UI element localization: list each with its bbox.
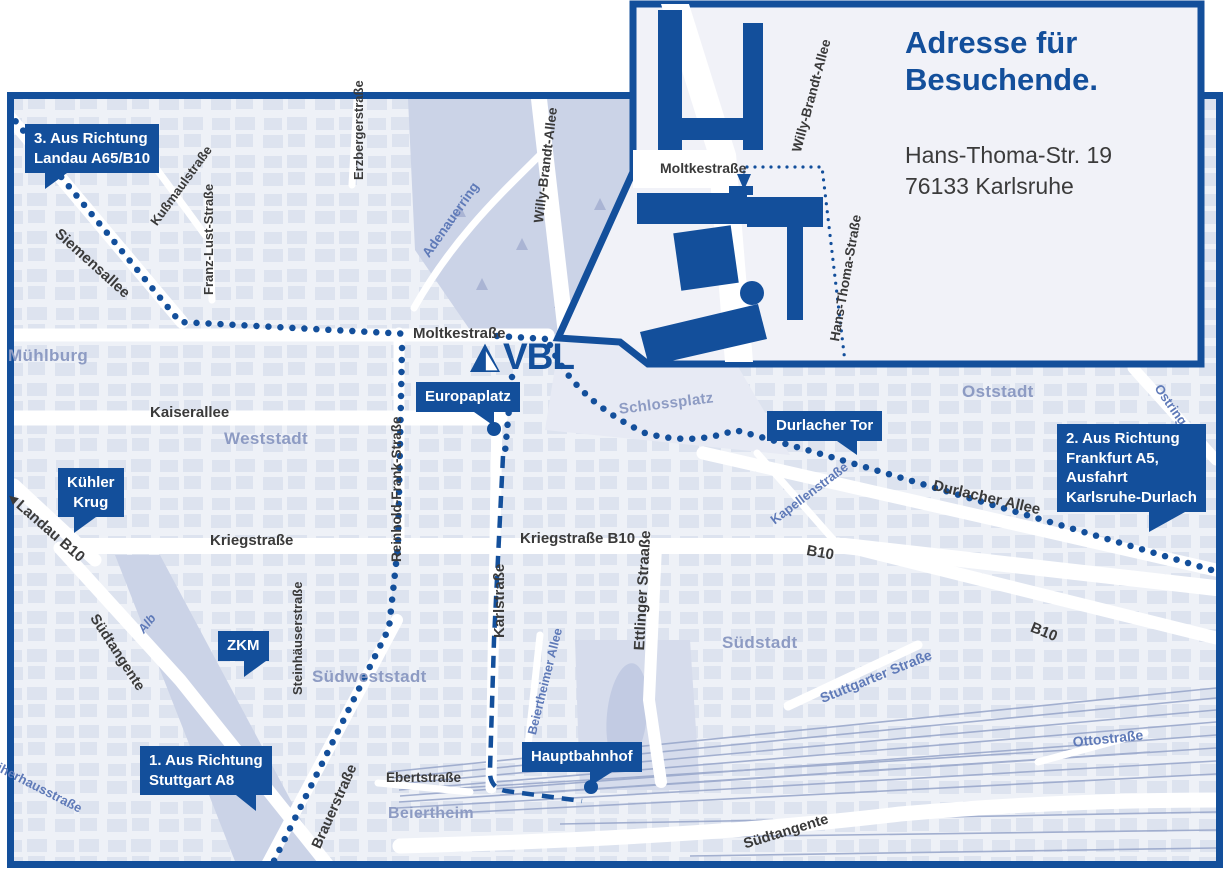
- callout-frankfurt: 2. Aus Richtung Frankfurt A5, Ausfahrt K…: [1057, 424, 1206, 512]
- street-label-kaiserallee: Kaiserallee: [150, 405, 229, 420]
- street-label-moltkestrasse: Moltkestraße: [413, 326, 506, 341]
- callout-tail: [45, 173, 67, 189]
- area-label-muehlburg: Mühlburg: [8, 347, 88, 364]
- callout-tail: [244, 661, 266, 677]
- callout-zkm: ZKM: [218, 631, 269, 661]
- street-label-kriegstrasse: Kriegstraße: [210, 533, 293, 548]
- inset-address: Hans-Thoma-Str. 19 76133 Karlsruhe: [905, 140, 1112, 202]
- street-label-ebertstrasse: Ebertstraße: [386, 771, 461, 785]
- inset-street-label-moltkestrasse: Moltkestraße: [660, 161, 746, 175]
- street-label-karlstrasse: Karlstraße: [492, 564, 507, 638]
- callout-durlacher-tor: Durlacher Tor: [767, 411, 882, 441]
- callout-kuehler-krug: Kühler Krug: [58, 468, 124, 517]
- callout-landau: 3. Aus Richtung Landau A65/B10: [25, 124, 159, 173]
- callout-tail: [236, 795, 256, 811]
- street-label-kriegstrasse-b10: Kriegstraße B10: [520, 531, 635, 546]
- street-label-b10-mitte: B10: [805, 543, 835, 563]
- area-label-beiertheim: Beiertheim: [388, 806, 474, 822]
- area-label-suedweststadt: Südweststadt: [312, 668, 427, 685]
- callout-tail: [837, 441, 857, 455]
- street-label-steinhaeuserstrasse: Steinhäuserstraße: [291, 582, 304, 695]
- callout-tail: [74, 517, 96, 533]
- callout-hauptbahnhof: Hauptbahnhof: [522, 742, 642, 772]
- inset-title: Adresse für Besuchende.: [905, 24, 1098, 98]
- street-label-franz-lust-strasse: Franz-Lust-Straße: [202, 184, 215, 295]
- callout-europaplatz: Europaplatz: [416, 382, 520, 412]
- area-label-weststadt: Weststadt: [224, 430, 308, 447]
- callout-tail: [1149, 512, 1185, 532]
- callout-tail: [590, 772, 612, 786]
- vbl-triangle-icon: [470, 342, 500, 372]
- callout-tail: [474, 412, 494, 426]
- street-label-reinhold-frank-strasse: Reinhold-Frank-Straße: [390, 416, 404, 562]
- city-map: Siemensallee Kußmaulstraße Franz-Lust-St…: [0, 0, 1230, 874]
- street-label-erzbergerstrasse: Erzbergerstraße: [352, 80, 365, 180]
- area-label-suedstadt: Südstadt: [722, 634, 797, 651]
- area-label-oststadt: Oststadt: [962, 383, 1034, 400]
- callout-stuttgart: 1. Aus Richtung Stuttgart A8: [140, 746, 272, 795]
